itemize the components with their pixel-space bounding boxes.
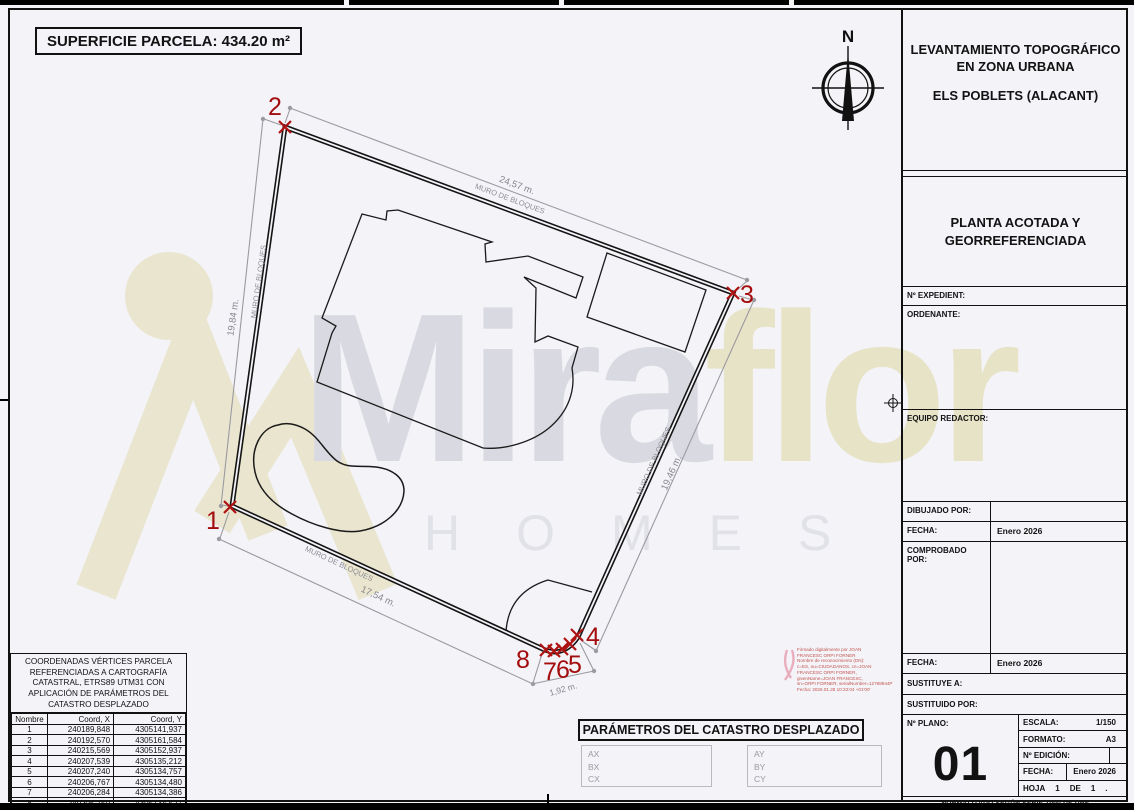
vertex-label-7: 7 [543,658,557,686]
subtitle-line2: GEORREFERENCIADA [945,232,1087,250]
pool-outline [254,424,404,532]
param-cx: CX [588,773,705,786]
dimension-labels: 24,57 m. 19,84 m. 19,46 m. 17,54 m. 1,92… [226,174,685,698]
sustituido-label: SUSTITUIDO POR: [907,700,978,709]
table-row: 4240207,5394305135,212 [12,756,186,767]
parametros-y-box: AY BY CY [747,745,882,787]
left-edge-tick [0,399,8,401]
edicion-value [1109,748,1116,763]
sheet-title-line1: LEVANTAMIENTO TOPOGRÁFICO [903,42,1128,59]
parametros-header: PARÁMETROS DEL CATASTRO DESPLAZADO [578,719,864,741]
ordenante-label: ORDENANTE: [907,310,960,319]
escala-label: ESCALA: [1023,718,1059,727]
expediente-row: Nº EXPEDIENT: [903,286,1128,306]
wall-label-bottom: MURO DE BLOQUES [304,544,375,583]
vertex-label-2: 2 [268,93,282,121]
table-row: 2240192,5704305161,584 [12,735,186,746]
fecha-row-3: FECHA: Enero 2026 [1019,764,1128,780]
title-block-panel: LEVANTAMIENTO TOPOGRÁFICO EN ZONA URBANA… [901,8,1128,802]
digital-signature-text: Firmado digitalmente por JOAN FRANCESC O… [797,647,893,693]
edicion-label: Nº EDICIÓN: [1023,751,1070,760]
vertex-label-4: 4 [586,623,600,651]
dibujado-row: DIBUJADO POR: [903,501,1128,521]
formato-label: FORMATO: [1023,735,1065,744]
formato-value: A3 [1106,735,1116,744]
expediente-label: Nº EXPEDIENT: [907,291,965,300]
parametros-title: PARÁMETROS DEL CATASTRO DESPLAZADO [583,723,860,737]
fecha-row-1: FECHA: Enero 2026 [903,521,1128,541]
comprobado-label: COMPROBADO POR: [903,542,991,653]
param-ay: AY [754,748,875,761]
hoja-label: HOJA [1023,784,1045,793]
fold-mark [789,0,794,5]
corner-structure-outline [506,580,592,631]
fold-mark [559,0,564,5]
table-row: 5240207,2404305134,757 [12,766,186,777]
plano-cell: Nº PLANO: 01 [903,715,1019,796]
vertex-label-3: 3 [740,281,754,309]
table-row: 6240206,7674305134,480 [12,777,186,788]
superficie-box: SUPERFICIE PARCELA: 434.20 m² [35,27,302,55]
sustituido-row: SUSTITUIDO POR: [903,694,1128,714]
bottom-edge-band [0,803,1134,810]
hoja-total: 1 [1091,784,1095,793]
param-bx: BX [588,761,705,774]
table-row: 3240215,5694305152,937 [12,745,186,756]
comprobado-value [991,542,1128,653]
equipo-redactor-label: EQUIPO REDACTOR: [907,414,988,423]
hoja-row: HOJA 1 DE 1 . [1019,781,1128,796]
building-footprints [254,210,706,631]
dibujado-value [991,502,1128,521]
vertex-label-1: 1 [206,507,220,535]
coords-header-row: Nombre Coord, X Coord, Y [12,714,186,725]
parcel-boundary-wall [232,127,733,652]
coordinates-table: COORDENADAS VÉRTICES PARCELA REFERENCIAD… [10,653,187,810]
north-letter: N [842,27,854,46]
dim-right: 19,46 m. [659,454,684,492]
registration-mark-icon [884,394,902,412]
formato-row: FORMATO: A3 [1019,731,1128,747]
plano-number: 01 [903,737,1018,792]
plano-section: Nº PLANO: 01 ESCALA: 1/150 FORMATO: A3 N… [903,714,1128,796]
parametros-x-box: AX BX CX [581,745,712,787]
annex-building-outline [587,253,706,352]
edicion-row: Nº EDICIÓN: [1019,748,1128,764]
fecha-value-3: Enero 2026 [1066,764,1116,779]
fecha-value-1: Enero 2026 [991,522,1128,541]
plano-label: Nº PLANO: [907,719,949,728]
fecha-label-2: FECHA: [903,654,991,673]
escala-row: ESCALA: 1/150 [1019,715,1128,731]
superficie-label: SUPERFICIE PARCELA: 434.20 m² [47,33,290,50]
dim-bottom: 17,54 m. [359,584,397,609]
table-row: 7240206,2844305134,386 [12,787,186,798]
dibujado-label: DIBUJADO POR: [903,502,991,521]
param-by: BY [754,761,875,774]
sheet-location: ELS POBLETS (ALACANT) [903,88,1128,103]
hoja-de: DE [1070,784,1081,793]
coordinates-table-title: COORDENADAS VÉRTICES PARCELA REFERENCIAD… [11,654,186,713]
ordenante-row: ORDENANTE: [903,306,1128,409]
hoja-suffix: . [1105,784,1107,793]
table-row: 1240189,8484305141,937 [12,724,186,735]
equipo-redactor-row: EQUIPO REDACTOR: [903,409,1128,501]
vertex-label-5: 5 [568,651,582,679]
sheet-title-line2: EN ZONA URBANA [903,59,1128,76]
plan-sheet: Miraflor HOMES [0,0,1134,810]
title-block-header: LEVANTAMIENTO TOPOGRÁFICO EN ZONA URBANA… [903,8,1128,170]
plano-meta: ESCALA: 1/150 FORMATO: A3 Nº EDICIÓN: FE… [1019,715,1128,796]
param-cy: CY [754,773,875,786]
vertex-label-8: 8 [516,646,530,674]
param-ax: AX [588,748,705,761]
subtitle-line1: PLANTA ACOTADA Y [945,214,1087,232]
hoja-number: 1 [1055,784,1059,793]
separator [903,170,1128,177]
dim-left: 19,84 m. [226,299,242,337]
top-edge-band [0,0,1134,5]
fecha-label-1: FECHA: [903,522,991,541]
fecha-label-3: FECHA: [1023,767,1053,776]
signature-ribbon-icon [782,649,796,683]
sustituye-label: SUSTITUYE A: [907,679,962,688]
sustituye-row: SUSTITUYE A: [903,673,1128,694]
north-compass-icon: N [812,27,884,130]
bottom-center-tick [547,794,549,803]
escala-value: 1/150 [1096,718,1116,727]
main-building-outline [317,210,583,448]
sheet-subtitle: PLANTA ACOTADA Y GEORREFERENCIADA [903,177,1128,286]
fold-mark [344,0,349,5]
comprobado-row: COMPROBADO POR: [903,541,1128,653]
fecha-value-2: Enero 2026 [991,654,1128,673]
fecha-row-2: FECHA: Enero 2026 [903,653,1128,673]
